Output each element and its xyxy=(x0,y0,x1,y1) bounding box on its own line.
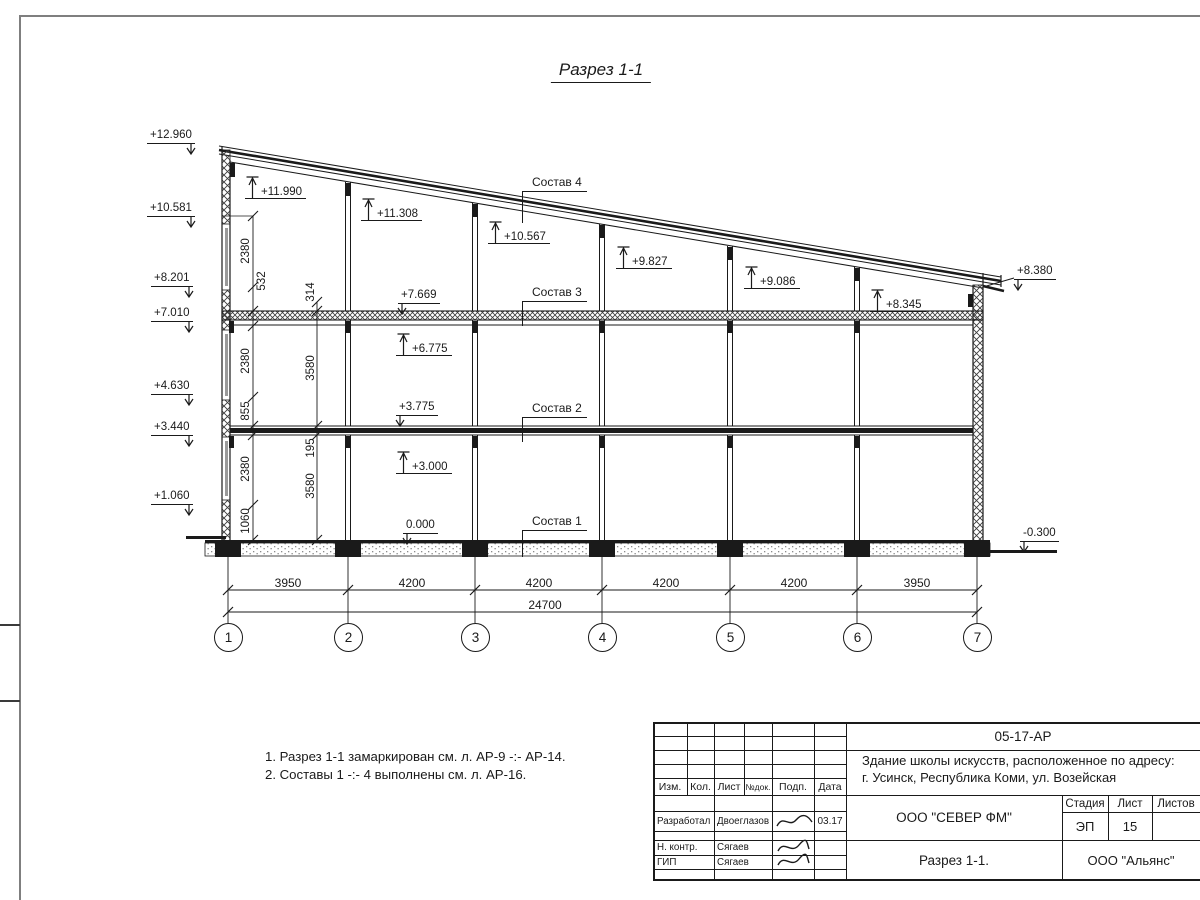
leader-line xyxy=(522,530,523,557)
level-mark: +1.060 xyxy=(151,490,193,505)
tb-grid-line xyxy=(687,722,688,795)
signature-icon xyxy=(774,838,812,870)
level-value: +11.308 xyxy=(377,208,418,221)
tb-col-izm: Изм. xyxy=(653,778,687,795)
vertical-dimension: 195 xyxy=(305,438,317,457)
level-mark: +10.567 xyxy=(488,221,550,244)
tb-role: Н. контр. xyxy=(657,840,714,855)
tb-grid-line xyxy=(653,840,1200,841)
level-mark: +6.775 xyxy=(396,333,452,356)
roof xyxy=(219,146,1004,291)
level-value: +11.990 xyxy=(261,186,302,199)
level-value: +8.201 xyxy=(154,272,190,284)
vertical-dimension: 2380 xyxy=(240,456,252,482)
tb-grid-line xyxy=(1152,795,1153,840)
tb-grid-line xyxy=(653,736,846,737)
up-arrow-icon xyxy=(744,266,759,288)
leader-line xyxy=(522,191,523,223)
tb-stage-label: Стадия xyxy=(1062,795,1108,812)
tb-col-kol: Кол. xyxy=(687,778,714,795)
composition-text: Состав 3 xyxy=(532,285,582,299)
tb-role: ГИП xyxy=(657,855,714,869)
level-value: +12.960 xyxy=(150,129,192,141)
level-mark: +7.669 xyxy=(398,289,440,304)
level-value: +10.581 xyxy=(150,202,192,214)
tb-company: ООО "Альянс" xyxy=(1062,840,1200,880)
composition-label: Состав 2 xyxy=(522,401,587,418)
notes: 1. Разрез 1-1 замаркирован см. л. АР-9 -… xyxy=(265,748,566,784)
level-mark: +7.010 xyxy=(151,307,193,322)
level-mark: +8.380 xyxy=(1014,265,1056,280)
down-arrow-icon xyxy=(394,415,406,428)
axis-bubble: 4 xyxy=(588,623,617,652)
tb-sheet-number: 15 xyxy=(1108,812,1152,840)
note-line: 1. Разрез 1-1 замаркирован см. л. АР-9 -… xyxy=(265,748,566,766)
tb-stage-value: ЭП xyxy=(1062,812,1108,840)
tb-grid-line xyxy=(653,869,846,870)
tb-project-line2: г. Усинск, Республика Коми, ул. Возейска… xyxy=(862,769,1197,786)
up-arrow-icon xyxy=(870,289,885,311)
tb-grid-line xyxy=(846,722,847,880)
down-arrow-icon xyxy=(183,394,195,407)
up-arrow-icon xyxy=(616,246,631,268)
down-arrow-icon xyxy=(1018,541,1030,554)
level-mark: 0.000 xyxy=(403,519,438,534)
composition-text: Состав 4 xyxy=(532,175,582,189)
tb-name: Двоеглазов xyxy=(717,811,772,831)
up-arrow-icon xyxy=(396,333,411,355)
tb-grid-line xyxy=(1062,795,1063,880)
tb-grid-line xyxy=(653,778,846,779)
level-value: 0.000 xyxy=(406,519,435,531)
tb-role: Разработал xyxy=(657,811,714,831)
level-value: -0.300 xyxy=(1023,527,1056,539)
tb-grid-line xyxy=(744,722,745,795)
vertical-dimension: 1060 xyxy=(240,508,252,534)
level-value: +1.060 xyxy=(154,490,190,502)
vertical-dimension: 3580 xyxy=(305,355,317,381)
horizontal-dimension: 4200 xyxy=(781,576,808,590)
horizontal-dimension: 4200 xyxy=(526,576,553,590)
down-arrow-icon xyxy=(183,286,195,299)
level-mark: +3.000 xyxy=(396,451,452,474)
down-arrow-icon xyxy=(185,216,197,229)
axis-bubble: 3 xyxy=(461,623,490,652)
level-value: +4.630 xyxy=(154,380,190,392)
horizontal-dimension: 3950 xyxy=(275,576,302,590)
axis-bubble: 1 xyxy=(214,623,243,652)
level-mark: +4.630 xyxy=(151,380,193,395)
tb-document-code: 05-17-АР xyxy=(847,723,1199,750)
tb-grid-line xyxy=(653,722,1200,724)
tb-sheet-title: Разрез 1-1. xyxy=(846,840,1062,880)
leader-line xyxy=(522,301,523,326)
level-mark: +12.960 xyxy=(147,129,195,144)
tb-grid-line xyxy=(1108,795,1109,840)
composition-text: Состав 2 xyxy=(532,401,582,415)
tb-grid-line xyxy=(653,811,846,812)
down-arrow-icon xyxy=(185,143,197,156)
up-arrow-icon xyxy=(396,451,411,473)
down-arrow-icon xyxy=(183,321,195,334)
total-dimension: 24700 xyxy=(528,598,561,612)
vertical-dimension: 855 xyxy=(240,401,252,420)
tb-grid-line xyxy=(714,722,715,880)
level-mark: -0.300 xyxy=(1020,527,1059,542)
level-mark: +9.086 xyxy=(744,266,800,289)
level-mark: +8.345 xyxy=(870,289,926,312)
tb-grid-line xyxy=(772,722,773,880)
horizontal-dimension: 3950 xyxy=(904,576,931,590)
tb-col-ndok: №док. xyxy=(744,778,772,795)
level-mark: +8.201 xyxy=(151,272,193,287)
level-mark: +9.827 xyxy=(616,246,672,269)
level-mark: +10.581 xyxy=(147,202,195,217)
down-arrow-icon xyxy=(183,435,195,448)
level-value: +8.345 xyxy=(886,299,922,312)
tb-col-list: Лист xyxy=(714,778,744,795)
level-value: +8.380 xyxy=(1017,265,1053,277)
axis-bubble: 7 xyxy=(963,623,992,652)
tb-name: Сягаев xyxy=(717,840,772,855)
horizontal-dimension: 4200 xyxy=(653,576,680,590)
up-arrow-icon xyxy=(488,221,503,243)
tb-grid-line xyxy=(653,722,655,880)
slab-level-2 xyxy=(230,426,973,435)
up-arrow-icon xyxy=(245,176,260,198)
tb-grid-line xyxy=(653,879,1200,881)
tb-grid-line xyxy=(1062,812,1200,813)
left-wall xyxy=(222,147,235,556)
level-value: +10.567 xyxy=(504,231,546,244)
down-arrow-icon xyxy=(1012,279,1024,292)
vertical-dimension: 2380 xyxy=(240,238,252,264)
dimension-lines xyxy=(223,585,982,617)
level-value: +6.775 xyxy=(412,343,448,356)
vertical-dimension: 314 xyxy=(305,282,317,301)
leader-line xyxy=(522,417,523,442)
level-value: +3.775 xyxy=(399,401,435,413)
tb-sheets-label: Листов xyxy=(1152,795,1200,812)
composition-label: Состав 4 xyxy=(522,175,587,192)
tb-grid-line xyxy=(653,764,846,765)
down-arrow-icon xyxy=(401,533,413,546)
signature-icon xyxy=(774,812,814,830)
level-mark: +11.308 xyxy=(361,198,422,221)
vertical-dimension: 2380 xyxy=(240,348,252,374)
level-mark: +3.775 xyxy=(396,401,438,416)
note-line: 2. Составы 1 -:- 4 выполнены см. л. АР-1… xyxy=(265,766,566,784)
tb-col-data: Дата xyxy=(814,778,846,795)
level-mark: +11.990 xyxy=(245,176,306,199)
vertical-dimension: 532 xyxy=(256,271,268,290)
level-value: +9.086 xyxy=(760,276,796,289)
composition-label: Состав 3 xyxy=(522,285,587,302)
tb-grid-line xyxy=(653,750,1200,751)
level-value: +9.827 xyxy=(632,256,668,269)
composition-label: Состав 1 xyxy=(522,514,587,531)
level-mark: +3.440 xyxy=(151,421,193,436)
tb-project-line1: Здание школы искусств, расположенное по … xyxy=(862,752,1197,769)
axis-bubble: 5 xyxy=(716,623,745,652)
level-value: +7.010 xyxy=(154,307,190,319)
up-arrow-icon xyxy=(361,198,376,220)
tb-grid-line xyxy=(814,722,815,880)
level-value: +3.440 xyxy=(154,421,190,433)
level-value: +3.000 xyxy=(412,461,448,474)
tb-col-podp: Подп. xyxy=(772,778,814,795)
tb-grid-line xyxy=(653,855,846,856)
columns xyxy=(346,182,860,540)
axis-bubble: 6 xyxy=(843,623,872,652)
composition-text: Состав 1 xyxy=(532,514,582,528)
tb-sheet-label: Лист xyxy=(1108,795,1152,812)
tb-organization: ООО "СЕВЕР ФМ" xyxy=(846,795,1062,840)
vertical-dimension: 3580 xyxy=(305,473,317,499)
tb-grid-line xyxy=(653,831,846,832)
tb-grid-line xyxy=(653,795,1200,796)
down-arrow-icon xyxy=(183,504,195,517)
axis-bubble: 2 xyxy=(334,623,363,652)
tb-name: Сягаев xyxy=(717,855,772,869)
tb-date: 03.17 xyxy=(814,811,846,831)
drawing-sheet: Разрез 1-1 +12.960+10.581+8.201+7.010+4.… xyxy=(0,0,1200,900)
horizontal-dimension: 4200 xyxy=(399,576,426,590)
tb-sheets-total xyxy=(1152,812,1200,840)
level-value: +7.669 xyxy=(401,289,437,301)
down-arrow-icon xyxy=(396,303,408,316)
